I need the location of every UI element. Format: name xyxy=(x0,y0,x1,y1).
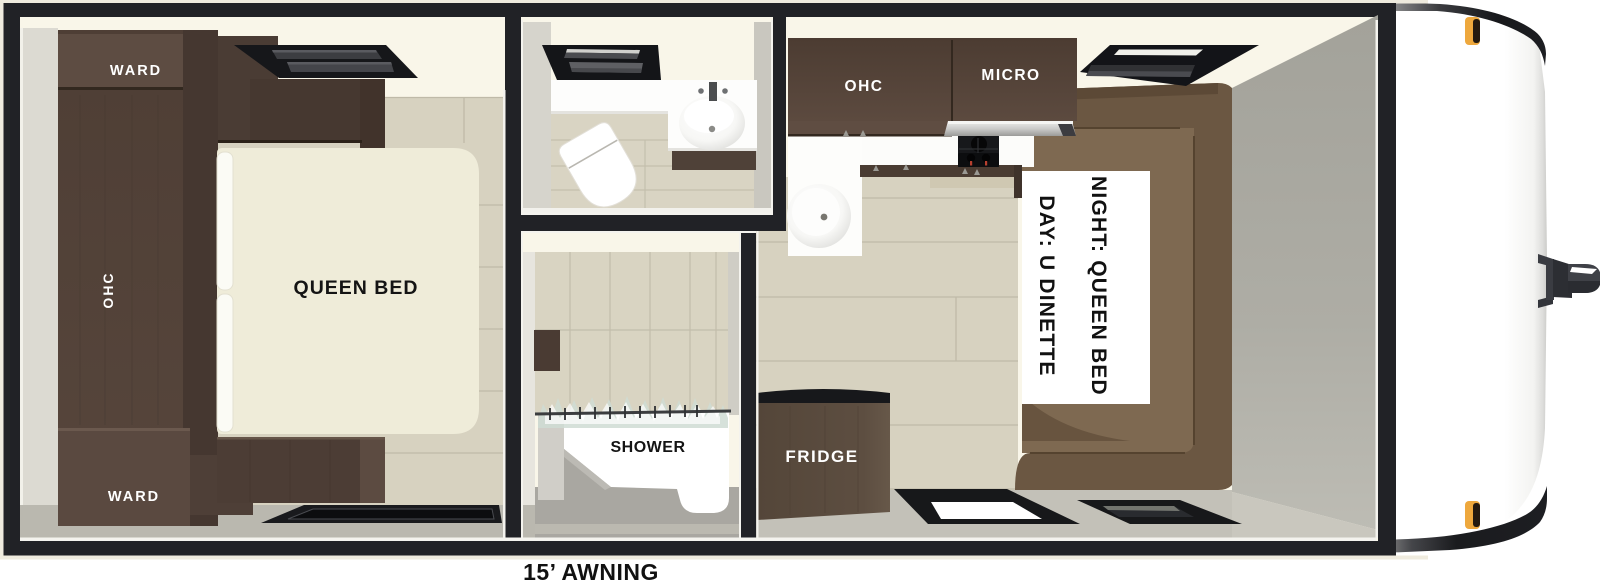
svg-text:OHC: OHC xyxy=(100,271,116,308)
svg-text:WARD: WARD xyxy=(110,63,162,79)
svg-text:FRIDGE: FRIDGE xyxy=(785,447,858,466)
svg-text:QUEEN BED: QUEEN BED xyxy=(294,277,419,299)
svg-text:DAY: U DINETTE: DAY: U DINETTE xyxy=(1035,195,1058,376)
svg-text:OHC: OHC xyxy=(845,78,884,95)
svg-text:NIGHT: QUEEN BED: NIGHT: QUEEN BED xyxy=(1087,176,1110,396)
svg-text:SHOWER: SHOWER xyxy=(611,439,686,456)
svg-text:MICRO: MICRO xyxy=(981,67,1040,84)
svg-text:15’ AWNING: 15’ AWNING xyxy=(523,559,659,585)
svg-text:WARD: WARD xyxy=(108,489,160,505)
